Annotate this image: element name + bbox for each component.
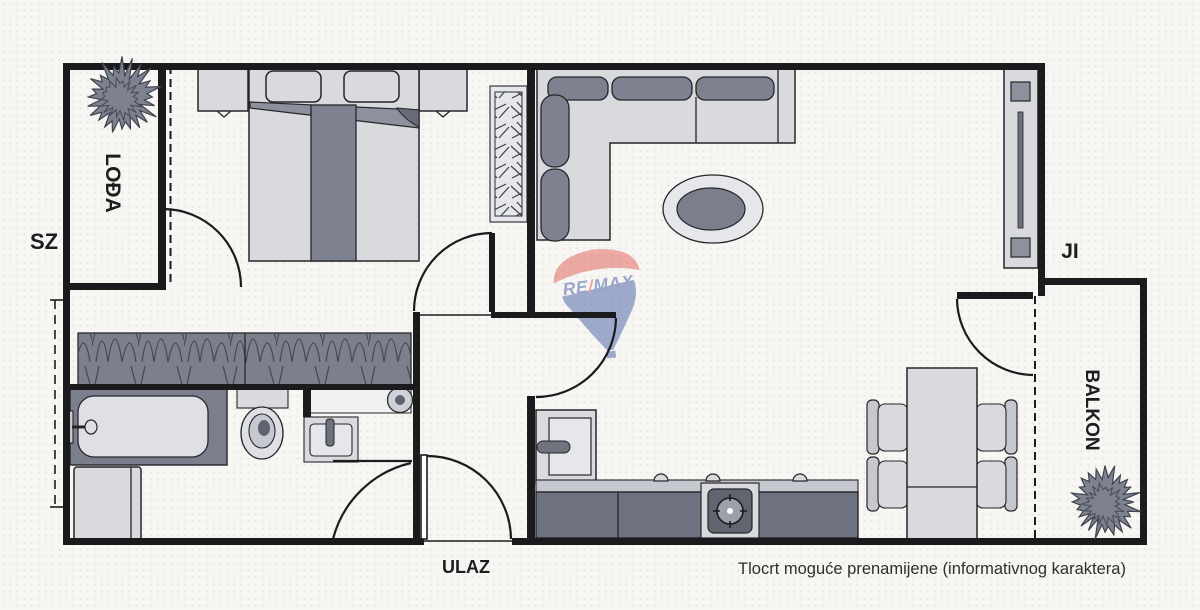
sofa-back-cushion <box>612 77 692 100</box>
room-label-loggia: LOĐA <box>101 153 124 213</box>
plant-icon <box>1072 466 1141 539</box>
balcony-wall-east <box>1140 278 1147 545</box>
bathtub-knob-icon <box>85 420 97 434</box>
wall-east <box>1038 63 1045 296</box>
toilet-drain-icon <box>258 420 270 436</box>
chair-backrest <box>1005 457 1017 511</box>
cabinet-handle-icon <box>706 474 720 481</box>
room-label-balcony: BALKON <box>1081 369 1102 450</box>
entrance-door-leaf <box>421 455 427 539</box>
wall-hall-west <box>413 312 420 538</box>
dining-set <box>867 368 1017 541</box>
nightstand-right-handle-icon <box>436 111 450 117</box>
kitchen-faucet-icon <box>537 441 570 453</box>
chair-backrest <box>867 457 879 511</box>
toilet-tank <box>237 389 288 408</box>
shelf-unit-box-bottom <box>1011 238 1030 257</box>
wall-bedroom-living-lower <box>527 396 535 538</box>
dining-chair <box>976 461 1006 508</box>
built-in-closet <box>78 333 411 385</box>
shelf-unit-box-top <box>1011 82 1030 101</box>
wall-south-right <box>512 538 1147 545</box>
wall-hall-north <box>491 312 536 318</box>
sofa-side-cushion <box>541 169 569 241</box>
washbasin-faucet-icon <box>326 419 334 446</box>
counter-edge <box>536 480 858 492</box>
dining-chair <box>878 461 908 508</box>
shelf-unit-slot <box>1018 112 1023 228</box>
compass-label-ji: JI <box>1061 240 1079 263</box>
loggia-wall-south <box>63 283 166 290</box>
bed-runner <box>311 105 356 261</box>
pillow-right <box>344 71 399 102</box>
wall-bedroom-living-upper <box>527 63 535 316</box>
kitchen-counter <box>536 492 858 538</box>
chair-backrest <box>867 400 879 454</box>
remax-watermark: RE/MAX <box>550 244 650 364</box>
bathroom-fixtures <box>64 388 413 541</box>
wall-west <box>63 63 70 545</box>
cabinet-handle-icon <box>793 474 807 481</box>
pillow-left <box>266 71 321 102</box>
wardrobe-hangers-icon <box>495 92 522 216</box>
kitchen <box>536 410 858 538</box>
footnote: Tlocrt moguće prenamijene (informativnog… <box>738 560 1126 578</box>
balcony-door-swing <box>957 299 1033 375</box>
balcony-door-leaf <box>957 292 1033 299</box>
nightstand-left <box>198 65 248 111</box>
wall-stub-bathroom <box>303 388 311 417</box>
entrance-door-swing <box>427 456 511 539</box>
loggia-door-swing <box>163 209 241 287</box>
sofa-side-cushion <box>541 95 569 167</box>
living-room-furniture <box>537 68 1038 268</box>
dining-table <box>907 368 977 541</box>
entrance-label: ULAZ <box>442 557 490 577</box>
water-heater-core-icon <box>395 395 405 405</box>
dining-chair <box>976 404 1006 451</box>
nightstand-left-handle-icon <box>217 111 231 117</box>
loggia-wall-east <box>158 63 166 290</box>
floor-plan-drawing: RE/MAX <box>0 0 1200 610</box>
dining-chair <box>878 404 908 451</box>
bedroom-furniture <box>198 65 527 261</box>
chair-backrest <box>1005 400 1017 454</box>
bedroom-door-leaf <box>489 233 495 312</box>
burner-center-icon <box>727 508 733 514</box>
balcony-wall-north <box>1045 278 1147 285</box>
bathroom-door-swing <box>333 463 411 539</box>
floor-plan-page: RE/MAX <box>0 0 1200 610</box>
rug-center <box>677 188 745 230</box>
wall-north <box>63 63 1045 70</box>
wall-bathroom-north <box>63 384 413 390</box>
nightstand-right <box>419 65 467 111</box>
wall-south-left <box>63 538 424 545</box>
sofa-back-cushion <box>696 77 774 100</box>
bedroom-door-swing <box>414 233 492 311</box>
living-door-leaf <box>536 312 616 318</box>
compass-label-sz: SZ <box>30 229 58 254</box>
cabinet-handle-icon <box>654 474 668 481</box>
